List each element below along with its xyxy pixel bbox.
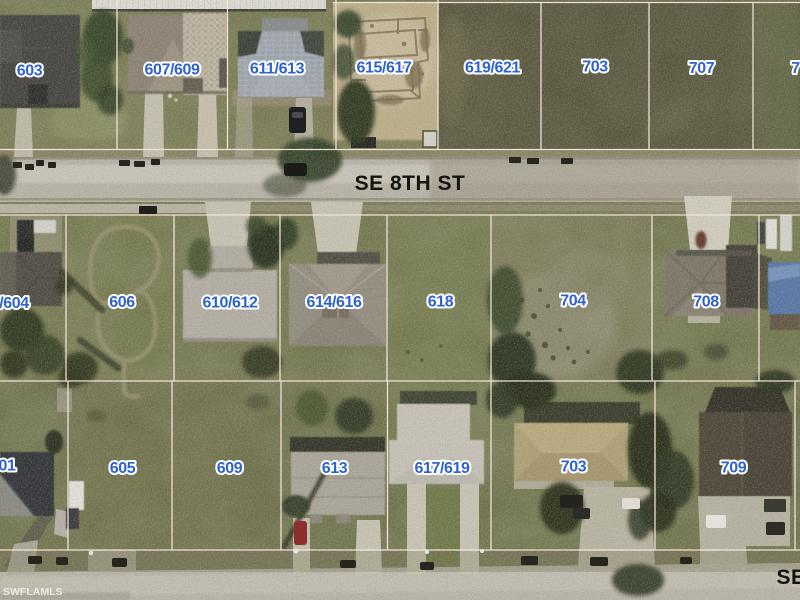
svg-text:619/621: 619/621	[465, 60, 521, 77]
svg-text:614/616: 614/616	[306, 294, 362, 311]
svg-text:610/612: 610/612	[202, 295, 258, 312]
svg-text:607/609: 607/609	[144, 62, 200, 79]
svg-text:709: 709	[721, 460, 747, 477]
svg-text:613: 613	[322, 460, 348, 477]
svg-text:618: 618	[428, 294, 454, 311]
svg-text:609: 609	[217, 460, 243, 477]
svg-text:703: 703	[561, 459, 587, 476]
svg-text:617/619: 617/619	[414, 460, 470, 477]
svg-text:01: 01	[0, 458, 16, 475]
svg-text:SWFLAMLS: SWFLAMLS	[3, 586, 63, 598]
svg-text:704: 704	[560, 293, 586, 310]
svg-text:603: 603	[17, 63, 43, 80]
svg-text:606: 606	[109, 294, 135, 311]
svg-text:611/613: 611/613	[250, 61, 305, 78]
svg-text:615/617: 615/617	[356, 60, 412, 77]
svg-text:7: 7	[791, 60, 800, 77]
svg-text:605: 605	[110, 460, 136, 477]
svg-text:703: 703	[582, 59, 608, 76]
svg-text:SE: SE	[776, 566, 800, 589]
svg-text:/604: /604	[0, 295, 29, 312]
svg-text:SE 8TH ST: SE 8TH ST	[355, 172, 466, 195]
svg-text:708: 708	[693, 294, 719, 311]
svg-text:707: 707	[689, 60, 715, 77]
